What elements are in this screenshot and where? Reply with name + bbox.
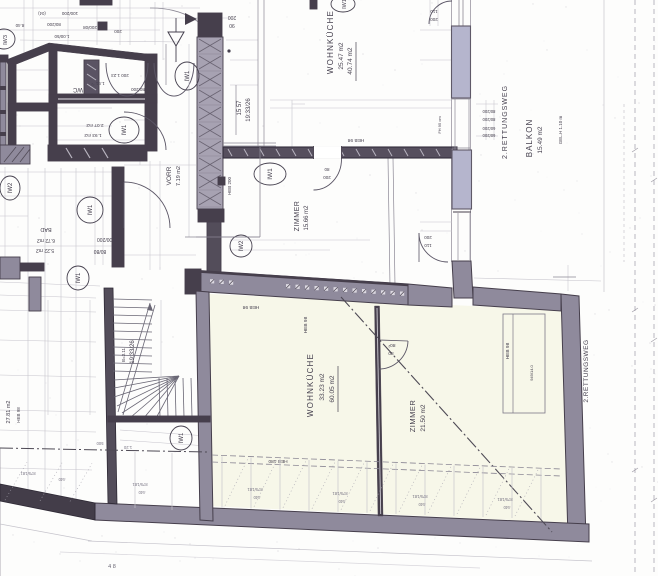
svg-text:GEL.H 1.10 m: GEL.H 1.10 m [558,115,563,144]
svg-text:19:33/26: 19:33/26 [246,98,252,122]
svg-text:2.RETTUNGSWEG: 2.RETTUNGSWEG [502,85,509,159]
svg-text:HEB 98: HEB 98 [505,342,511,359]
svg-text:HEB 98: HEB 98 [303,316,309,333]
svg-text:80: 80 [324,167,330,172]
svg-text:21.50 m2: 21.50 m2 [420,404,427,431]
svg-text:60/200: 60/200 [482,126,495,131]
svg-text:200/08: 200/08 [83,25,97,30]
svg-text:ZIMMER: ZIMMER [408,400,417,433]
svg-text:500: 500 [96,441,104,446]
svg-text:IW1: IW1 [122,124,128,135]
svg-text:WOHNKÜCHE: WOHNKÜCHE [306,353,315,417]
svg-text:IW1: IW1 [88,204,94,215]
svg-text:1.91 °²: 1.91 °² [91,81,105,86]
svg-text:IW1: IW1 [179,432,185,443]
svg-text:40.74 m2: 40.74 m2 [347,47,354,74]
svg-text:440: 440 [58,477,66,482]
svg-text:IW1: IW1 [185,70,191,81]
svg-text:80/200: 80/200 [131,87,145,92]
svg-text:200: 200 [424,235,432,240]
svg-text:949/14.0: 949/14.0 [529,364,534,380]
svg-text:200: 200 [323,175,331,180]
svg-text:IW1: IW1 [76,272,82,283]
svg-text:B=3.11: B=3.11 [121,347,126,362]
svg-text:110: 110 [430,9,438,14]
svg-text:200/200: 200/200 [97,236,115,242]
svg-text:HEB 98: HEB 98 [242,304,259,310]
svg-text:4 8: 4 8 [108,564,116,570]
svg-text:200: 200 [114,29,122,34]
svg-text:875/181: 875/181 [132,482,148,487]
svg-text:875/181: 875/181 [247,487,263,492]
svg-text:875/181: 875/181 [332,491,348,496]
svg-text:BALKON: BALKON [525,119,534,157]
svg-text:440: 440 [338,499,346,504]
svg-text:15.66 m2: 15.66 m2 [304,205,310,231]
svg-text:15.49 m2: 15.49 m2 [537,126,544,153]
svg-text:19:33/26: 19:33/26 [130,340,136,364]
svg-text:80/200: 80/200 [482,109,495,114]
svg-text:875/181: 875/181 [412,494,428,499]
svg-text:90: 90 [229,22,235,28]
svg-text:80/200: 80/200 [47,22,61,27]
svg-text:200: 200 [228,14,237,20]
svg-text:440: 440 [503,505,511,510]
svg-text:110: 110 [424,243,432,248]
svg-text:25.47 m2: 25.47 m2 [338,42,345,69]
svg-text:27.81 m2: 27.81 m2 [6,401,12,424]
svg-text:(04): (04) [38,11,46,16]
svg-text:8.40: 8.40 [15,23,24,28]
svg-text:2.07 m2: 2.07 m2 [86,122,104,128]
svg-text:HEB 98: HEB 98 [347,137,364,143]
svg-text:440: 440 [418,502,426,507]
svg-text:HEB 98: HEB 98 [16,407,21,423]
svg-text:440: 440 [138,490,146,495]
svg-text:200: 200 [430,17,438,22]
svg-text:60/200: 60/200 [482,133,495,138]
svg-text:2.RETTUNGSWEG: 2.RETTUNGSWEG [583,339,590,402]
svg-text:6.72 m2: 6.72 m2 [37,237,55,243]
svg-text:7.19 m2: 7.19 m2 [176,166,182,186]
svg-text:BAD: BAD [40,226,51,232]
svg-text:1.93 m2: 1.93 m2 [84,132,102,138]
svg-text:33.23 m2: 33.23 m2 [319,373,326,400]
svg-text:ZIMMER: ZIMMER [294,201,301,232]
svg-text:440: 440 [253,495,261,500]
svg-text:HEB 200: HEB 200 [227,176,232,195]
svg-text:IW1: IW1 [342,0,348,9]
svg-text:HEB 180: HEB 180 [268,458,288,464]
svg-text:875/181: 875/181 [497,497,513,502]
svg-text:5.22 m2: 5.22 m2 [36,247,54,253]
svg-text:80/200: 80/200 [482,117,495,122]
svg-text:FH 95 cm: FH 95 cm [437,116,442,134]
svg-text:15 57: 15 57 [237,100,243,116]
svg-text:IW3: IW3 [3,35,9,45]
svg-text:IW2: IW2 [239,240,245,251]
svg-text:IW1: IW1 [267,168,274,180]
svg-text:60.05 m2: 60.05 m2 [329,375,336,402]
svg-text:200 1.23: 200 1.23 [111,73,129,78]
svg-text:875/181: 875/181 [20,471,36,476]
svg-text:80/80: 80/80 [94,248,107,254]
svg-text:80²: 80² [388,342,395,348]
svg-text:IW2: IW2 [8,182,14,193]
svg-text:WC: WC [72,86,83,92]
svg-text:VORR: VORR [166,166,173,185]
svg-text:100/200: 100/200 [61,11,78,16]
svg-text:1.00/50: 1.00/50 [54,34,70,39]
svg-text:1.20: 1.20 [123,445,132,450]
svg-text:WOHNKÜCHE: WOHNKÜCHE [326,10,335,74]
